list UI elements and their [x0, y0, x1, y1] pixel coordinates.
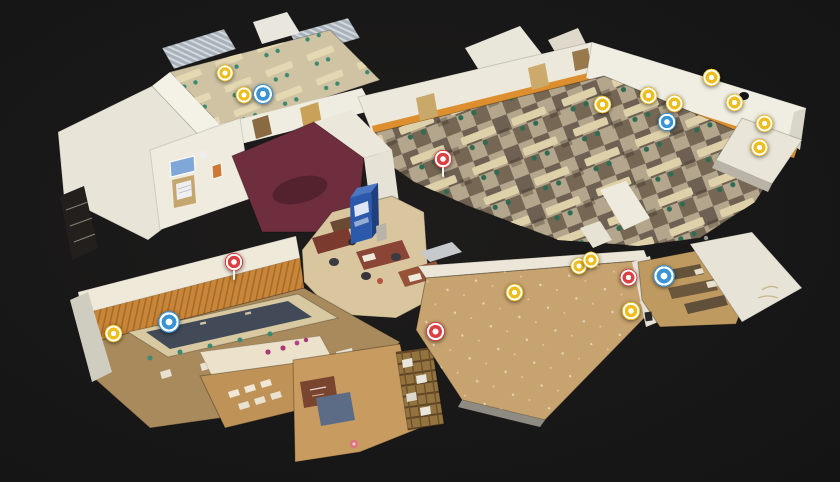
- mattertag-yellow[interactable]: [754, 113, 775, 134]
- mattertag-red[interactable]: [618, 267, 639, 288]
- room-classroom-large: [358, 26, 806, 248]
- mattertag-red[interactable]: [424, 320, 447, 343]
- entrance-area: [200, 336, 444, 462]
- mattertag-blue[interactable]: [651, 263, 677, 289]
- mattertag-yellow[interactable]: [638, 85, 659, 106]
- matterport-dollhouse-viewport: [0, 0, 840, 482]
- mattertag-red[interactable]: [432, 148, 454, 170]
- mattertag-yellow[interactable]: [724, 92, 745, 113]
- mattertag-blue[interactable]: [156, 309, 182, 335]
- mattertag-yellow[interactable]: [701, 67, 722, 88]
- mattertag-yellow[interactable]: [749, 137, 770, 158]
- mattertag-yellow[interactable]: [592, 94, 613, 115]
- mattertag-yellow[interactable]: [103, 323, 124, 344]
- mattertag-yellow[interactable]: [504, 282, 525, 303]
- mattertag-blue[interactable]: [656, 111, 678, 133]
- mattertag-blue[interactable]: [251, 82, 275, 106]
- mattertag-yellow[interactable]: [215, 63, 235, 83]
- mattertag-red[interactable]: [223, 251, 245, 273]
- mattertag-stem: [233, 270, 235, 280]
- mattertag-pink[interactable]: [349, 439, 359, 449]
- mattertag-stem: [442, 167, 444, 177]
- mattertag-yellow[interactable]: [620, 300, 642, 322]
- mattertag-yellow[interactable]: [581, 250, 601, 270]
